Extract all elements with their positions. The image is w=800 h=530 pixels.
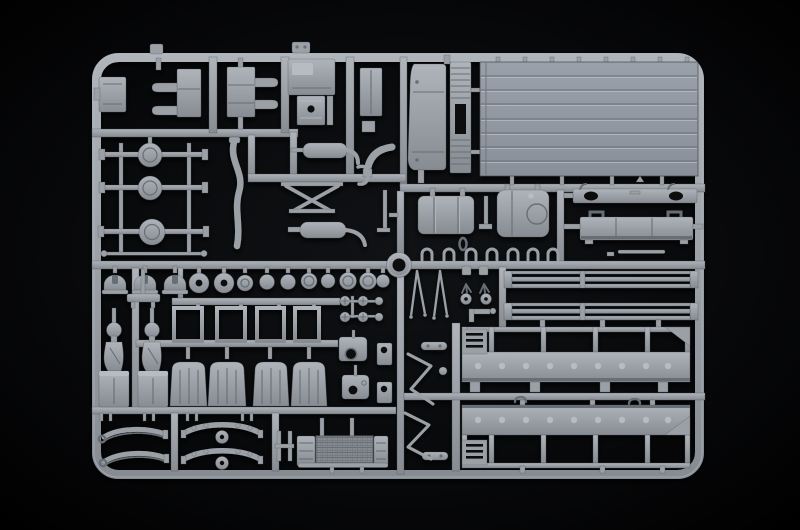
bed-floor-panel: [480, 62, 698, 182]
sprue-photo: [0, 0, 800, 530]
hatch-panel: [288, 59, 335, 95]
cab-panel: [408, 64, 446, 183]
filler-box: [297, 96, 333, 125]
frame-tab-center: [292, 42, 310, 53]
photo-canvas: [0, 0, 800, 530]
under-bed-storage-box: [564, 212, 703, 244]
gate-ring: [387, 253, 412, 278]
frame-tab-left: [150, 44, 163, 54]
bed-side-panel-upper: [462, 320, 690, 392]
fuel-tank-b: [497, 184, 549, 237]
storage-box-small: [94, 77, 126, 112]
